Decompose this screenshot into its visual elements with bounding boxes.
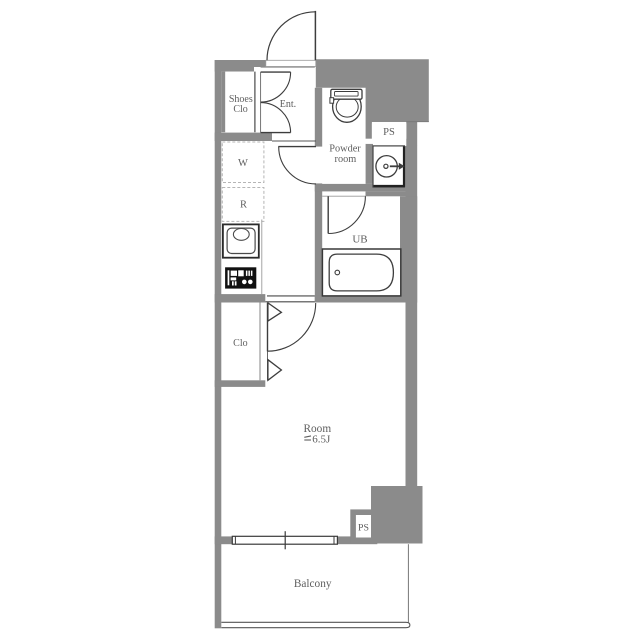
svg-text:Clo: Clo xyxy=(233,104,247,115)
svg-text:W: W xyxy=(238,158,248,169)
svg-text:R: R xyxy=(240,199,247,210)
svg-text:Powder: Powder xyxy=(329,143,361,154)
svg-text:Clo: Clo xyxy=(233,338,247,349)
svg-text:6.5J: 6.5J xyxy=(312,433,331,445)
svg-text:Ent.: Ent. xyxy=(280,99,296,110)
svg-text:PS: PS xyxy=(383,127,395,138)
svg-text:PS: PS xyxy=(358,523,369,534)
svg-text:room: room xyxy=(335,154,357,165)
svg-text:Shoes: Shoes xyxy=(229,94,253,105)
svg-text:UB: UB xyxy=(352,234,367,246)
svg-text:Balcony: Balcony xyxy=(294,578,332,590)
